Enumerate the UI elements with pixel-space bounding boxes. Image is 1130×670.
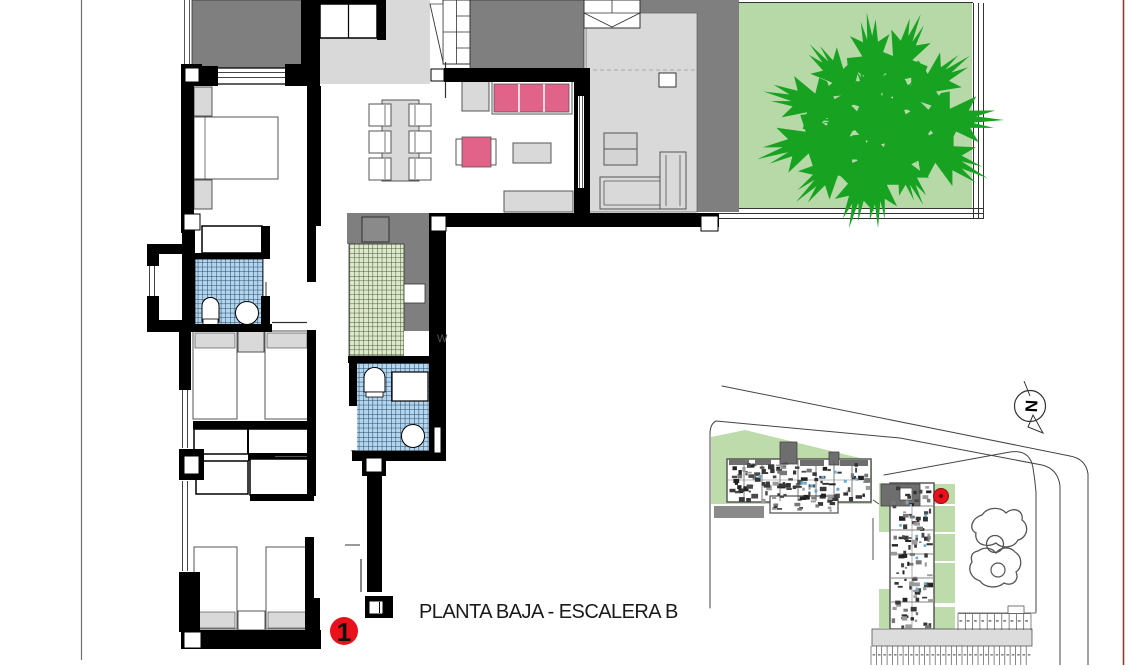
- svg-text:PLANTA BAJA - ESCALERA B: PLANTA BAJA - ESCALERA B: [419, 601, 678, 623]
- svg-text:1: 1: [337, 617, 351, 647]
- svg-text:W: W: [437, 333, 448, 345]
- svg-text:N: N: [1021, 399, 1041, 412]
